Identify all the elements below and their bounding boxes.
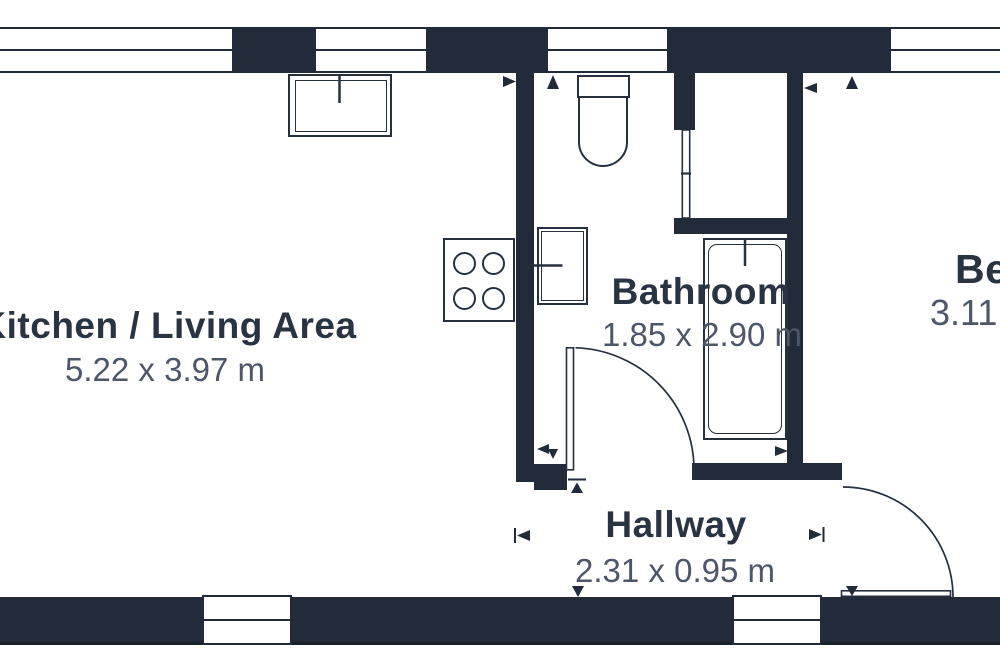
bathroom-dimensions: 1.85 x 2.90 m bbox=[602, 316, 802, 354]
dimension-arrow-hallway-left bbox=[517, 530, 530, 541]
bedroom-dimensions: 3.11 bbox=[930, 292, 997, 334]
hallway-dimensions: 2.31 x 0.95 m bbox=[575, 552, 775, 590]
hallway-label: Hallway bbox=[605, 504, 746, 546]
dimension-arrow-hallway-right bbox=[809, 529, 822, 540]
dimension-arrow-bathroom-right bbox=[775, 446, 788, 456]
dimension-arrow-bathroom-up bbox=[547, 75, 559, 89]
bathroom-door-arc bbox=[576, 348, 695, 470]
bathroom-label: Bathroom bbox=[612, 271, 791, 313]
dimension-arrow-bathroom-down bbox=[548, 449, 558, 459]
bedroom-door-leaf bbox=[842, 591, 951, 597]
bedroom-label: Bedroom bbox=[955, 246, 1000, 293]
bedroom-door-arc bbox=[843, 487, 953, 597]
dimension-arrow-bedroom-up bbox=[846, 76, 858, 89]
kitchen-dimensions: 5.22 x 3.97 m bbox=[65, 351, 265, 389]
dimension-arrow-hallway-up bbox=[571, 483, 583, 494]
kitchen-label: Kitchen / Living Area bbox=[0, 305, 357, 347]
dimension-arrow-bathroom-left bbox=[537, 444, 549, 454]
dimension-arrow-kitchen-right bbox=[503, 76, 516, 87]
bathroom-door-leaf bbox=[567, 348, 574, 470]
dimension-arrow-bedroom-left bbox=[804, 83, 817, 93]
floor-plan: Kitchen / Living Area 5.22 x 3.97 m Bath… bbox=[0, 0, 1000, 666]
